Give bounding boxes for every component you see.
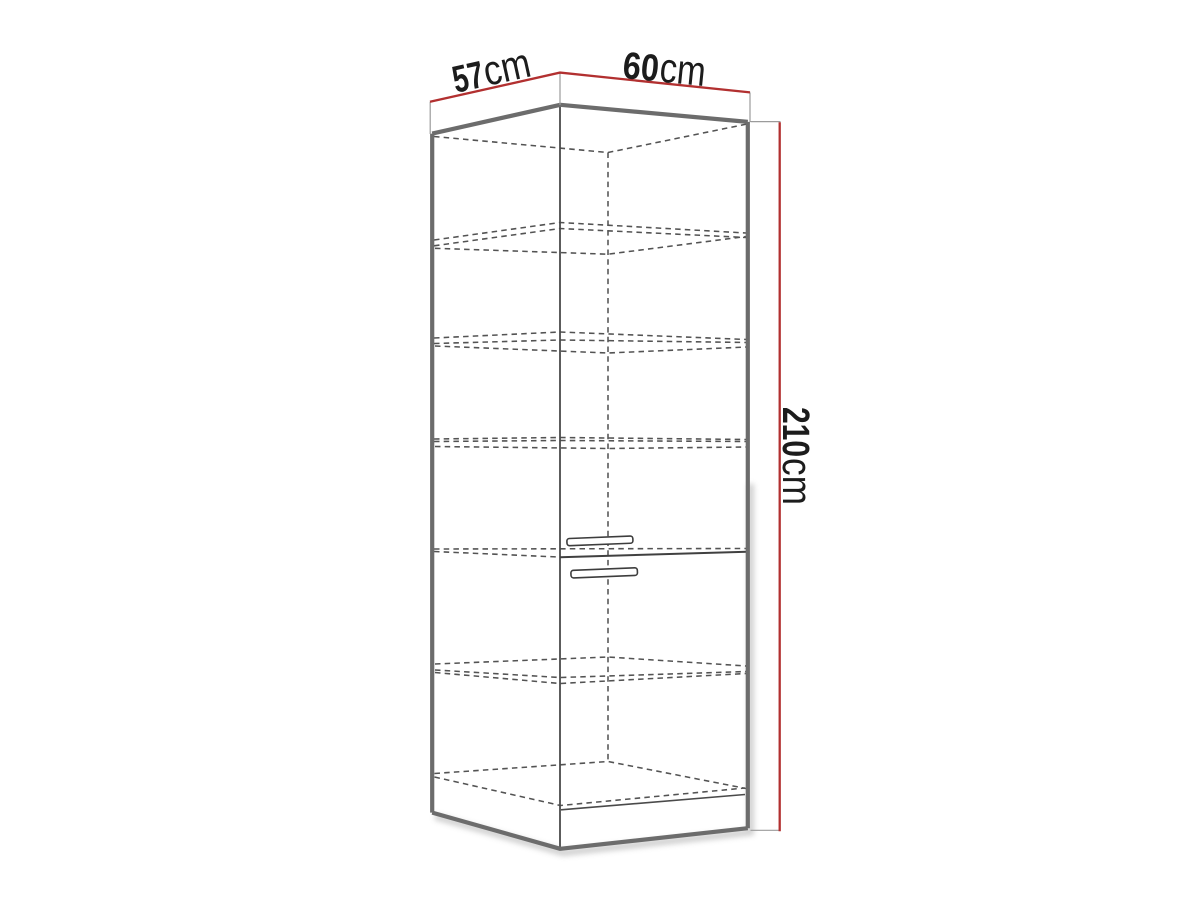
svg-text:60: 60 <box>621 45 661 90</box>
svg-text:cm: cm <box>774 458 821 505</box>
svg-text:210: 210 <box>774 407 816 457</box>
svg-text:cm: cm <box>479 39 535 95</box>
svg-text:cm: cm <box>658 44 708 95</box>
